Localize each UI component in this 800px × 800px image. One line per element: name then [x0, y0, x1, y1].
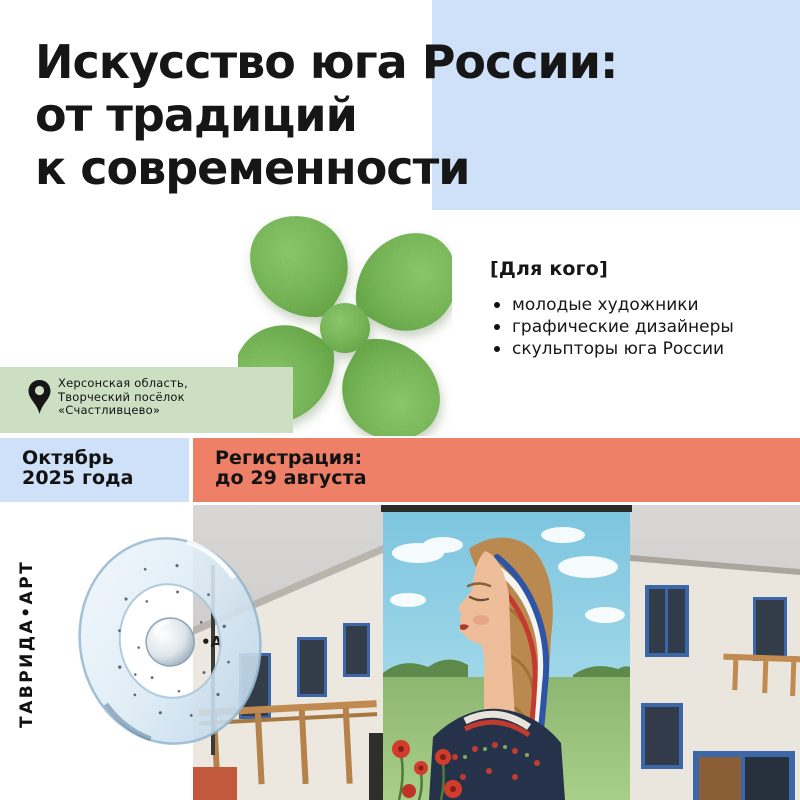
- audience-item: графические дизайнеры: [490, 316, 790, 338]
- photo-graphic: •А: [193, 505, 800, 800]
- audience-section: [Для кого] молодые художники графические…: [490, 258, 790, 360]
- location-text: Херсонская область, Творческий посёлок «…: [58, 377, 188, 418]
- date-line-1: Октябрь: [22, 449, 134, 469]
- audience-item: скульпторы юга России: [490, 338, 790, 360]
- title-line-2: от традиций: [35, 89, 735, 142]
- location-line-1: Херсонская область,: [58, 377, 188, 391]
- poster: Искусство юга России: от традиций к совр…: [0, 0, 800, 800]
- page-title: Искусство юга России: от традиций к совр…: [35, 36, 735, 195]
- audience-item: молодые художники: [490, 294, 790, 316]
- registration-line-2: до 29 августа: [215, 469, 367, 489]
- registration-line-1: Регистрация:: [215, 449, 367, 469]
- title-line-3: к современности: [35, 142, 735, 195]
- date-line-2: 2025 года: [22, 469, 134, 489]
- bullet-dot: [494, 302, 500, 308]
- bullet-dot: [494, 346, 500, 352]
- date-block: Октябрь 2025 года: [0, 438, 189, 502]
- building-mural-photo: •А: [193, 505, 800, 800]
- bullet-dot: [494, 324, 500, 330]
- location-block: Херсонская область, Творческий посёлок «…: [0, 367, 293, 433]
- audience-item-label: молодые художники: [512, 295, 699, 315]
- glass-ring-graphic: [74, 532, 266, 750]
- registration-block: Регистрация: до 29 августа: [193, 438, 800, 502]
- location-line-3: «Счастливцево»: [58, 404, 188, 418]
- location-pin-icon: [27, 379, 52, 415]
- audience-item-label: скульпторы юга России: [512, 339, 724, 359]
- brand-vertical-text: ТАВРИДА•АРТ: [17, 544, 53, 744]
- location-line-2: Творческий посёлок: [58, 391, 188, 405]
- audience-header: [Для кого]: [490, 258, 790, 280]
- date-text: Октябрь 2025 года: [22, 449, 134, 488]
- audience-list: молодые художники графические дизайнеры …: [490, 294, 790, 360]
- title-line-1: Искусство юга России:: [35, 36, 735, 89]
- registration-text: Регистрация: до 29 августа: [215, 449, 367, 488]
- audience-item-label: графические дизайнеры: [512, 317, 734, 337]
